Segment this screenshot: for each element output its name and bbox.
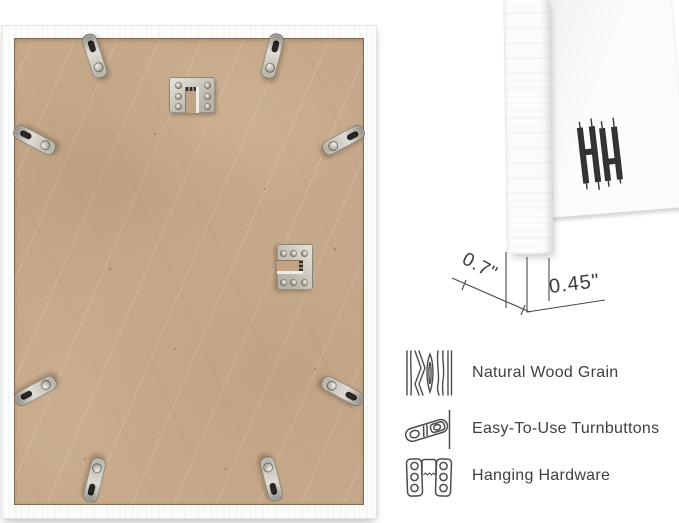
feature-label: Easy-To-Use Turnbuttons bbox=[472, 420, 659, 438]
product-infographic: 0.7" 0.45" Natural Wood Grain bbox=[0, 0, 679, 523]
sawtooth-teeth bbox=[299, 261, 303, 271]
hanger-notch bbox=[185, 87, 199, 113]
feature-label: Hanging Hardware bbox=[472, 467, 610, 485]
sawtooth-teeth bbox=[186, 87, 196, 91]
wood-grain-icon bbox=[402, 350, 456, 396]
feature-row: Hanging Hardware bbox=[402, 453, 672, 499]
sawtooth-hanger-side bbox=[277, 244, 313, 290]
dimension-tick bbox=[462, 280, 466, 290]
hanging-hardware-icon bbox=[402, 453, 456, 499]
feature-label: Natural Wood Grain bbox=[472, 364, 619, 382]
turnbutton-icon bbox=[402, 406, 456, 452]
hanger-notch bbox=[277, 260, 303, 274]
mdf-specks bbox=[14, 38, 16, 40]
frame-back-photo bbox=[1, 25, 377, 519]
sawtooth-hanger-top bbox=[169, 77, 215, 113]
frame-molding bbox=[503, 0, 554, 254]
feature-row: Easy-To-Use Turnbuttons bbox=[402, 406, 672, 452]
feature-row: Natural Wood Grain bbox=[402, 350, 672, 396]
face-width-dimension-line bbox=[527, 300, 605, 312]
brand-monogram-logo bbox=[574, 116, 624, 191]
